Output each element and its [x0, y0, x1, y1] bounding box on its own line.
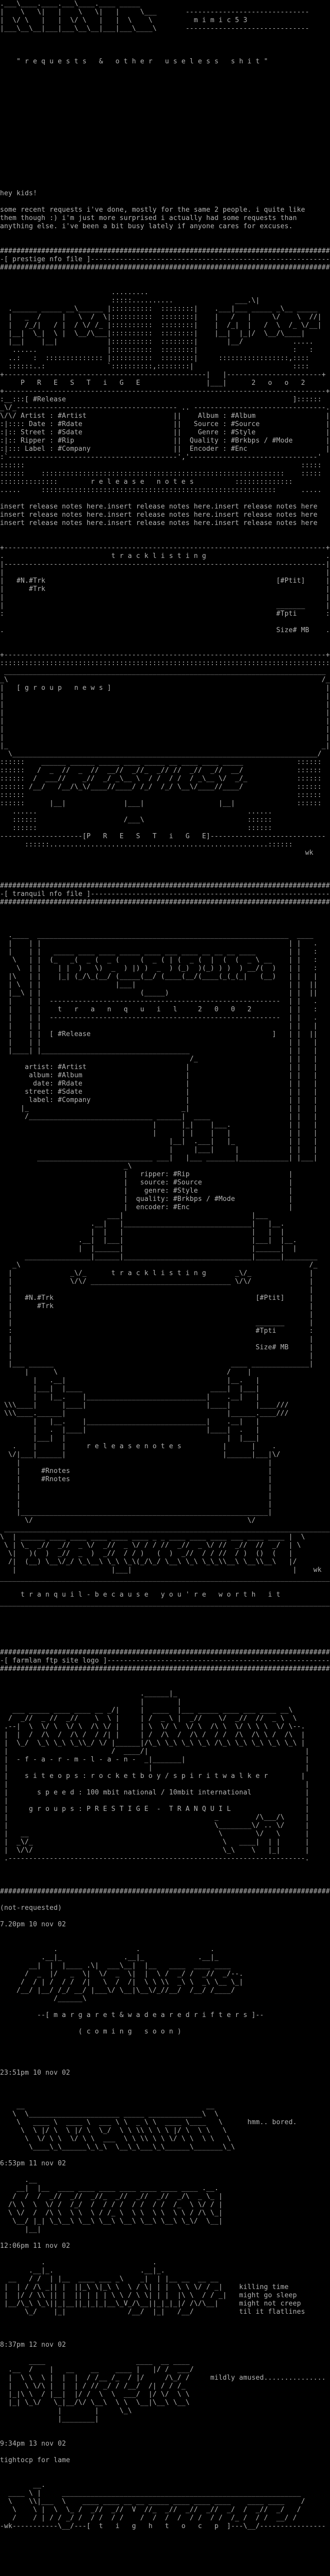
prestige-nfo-ascii: ########################################… — [0, 231, 330, 857]
section-tranquil-nfo-file: ########################################… — [0, 857, 330, 1607]
intro-text: hey kids! some recent requests i've done… — [0, 66, 330, 231]
nfo-document: .___\____.____.___\____.____ _____ | \ \… — [0, 0, 330, 2576]
mimic-logo-ascii: .___\____.____.___\____.____ _____ | \ \… — [0, 0, 330, 66]
section-farmlan-ftp-site-logo: ########################################… — [0, 1607, 330, 1863]
section-requests-log: ########################################… — [0, 1863, 330, 2531]
farmlan-logo-ascii: ########################################… — [0, 1607, 330, 1863]
section-intro: hey kids! some recent requests i've done… — [0, 66, 330, 231]
section-mimic-header: .___\____.____.___\____.____ _____ | \ \… — [0, 0, 330, 66]
section-prestige-nfo-file: ########################################… — [0, 231, 330, 857]
requests-log-ascii: ########################################… — [0, 1863, 330, 2531]
tranquil-nfo-ascii: ########################################… — [0, 857, 330, 1607]
footer-ascii: ########################################… — [0, 2531, 330, 2576]
section-footer: ########################################… — [0, 2531, 330, 2576]
